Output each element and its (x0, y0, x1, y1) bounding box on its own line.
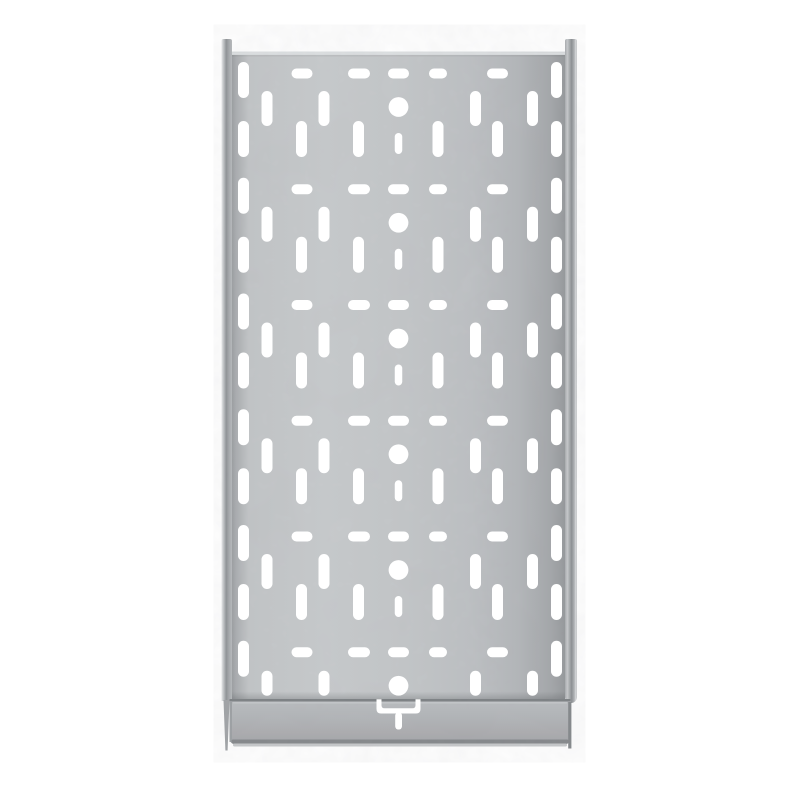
horizontal-slot (292, 184, 313, 194)
horizontal-slot (487, 69, 508, 79)
center-hole (389, 676, 409, 696)
horizontal-slot (487, 416, 508, 426)
horizontal-slot (388, 184, 409, 194)
edge-slot (238, 584, 249, 620)
vertical-slot (262, 671, 273, 696)
edge-slot (551, 468, 562, 504)
vertical-slot (353, 353, 364, 389)
vertical-slot (296, 237, 307, 273)
edge-slot (238, 294, 249, 330)
edge-slot (238, 62, 249, 98)
horizontal-slot (429, 416, 447, 426)
horizontal-slot (388, 532, 409, 542)
horizontal-slot (348, 532, 370, 542)
vertical-slot (319, 671, 330, 696)
vertical-slot (527, 207, 538, 242)
edge-slot (238, 641, 249, 677)
edge-slot (238, 353, 249, 389)
vertical-slot (262, 91, 273, 126)
vertical-slot (353, 121, 364, 157)
vertical-slot (433, 121, 444, 157)
vertical-slot (492, 584, 503, 620)
vertical-slot (296, 468, 307, 504)
vertical-slot (492, 353, 503, 389)
edge-slot (551, 353, 562, 389)
center-small-slot (395, 249, 403, 270)
vertical-slot (470, 91, 481, 126)
vertical-slot (527, 671, 538, 696)
horizontal-slot (388, 69, 409, 79)
horizontal-slot (487, 184, 508, 194)
vertical-slot (527, 91, 538, 126)
vertical-slot (470, 554, 481, 589)
vertical-slot (353, 468, 364, 504)
vertical-slot (492, 121, 503, 157)
edge-slot (238, 409, 249, 445)
vertical-slot (433, 468, 444, 504)
horizontal-slot (348, 416, 370, 426)
edge-slot (551, 237, 562, 273)
center-hole (389, 444, 409, 464)
edge-slot (551, 62, 562, 98)
edge-slot (238, 525, 249, 561)
t-slot-stem (395, 713, 402, 730)
edge-slot (551, 409, 562, 445)
vertical-slot (296, 353, 307, 389)
vertical-slot (319, 554, 330, 589)
vertical-slot (470, 323, 481, 358)
edge-slot (238, 468, 249, 504)
horizontal-slot (429, 184, 447, 194)
edge-slot (551, 641, 562, 677)
center-hole (389, 560, 409, 580)
horizontal-slot (292, 532, 313, 542)
edge-slot (238, 178, 249, 214)
vertical-slot (492, 468, 503, 504)
horizontal-slot (487, 532, 508, 542)
edge-slot (551, 584, 562, 620)
edge-slot (551, 178, 562, 214)
vertical-slot (353, 584, 364, 620)
edge-slot (551, 525, 562, 561)
vertical-slot (262, 207, 273, 242)
horizontal-slot (487, 300, 508, 310)
horizontal-slot (292, 416, 313, 426)
vertical-slot (262, 438, 273, 473)
vertical-slot (527, 438, 538, 473)
vertical-slot (262, 554, 273, 589)
horizontal-slot (429, 647, 447, 657)
vertical-slot (296, 584, 307, 620)
horizontal-slot (429, 532, 447, 542)
horizontal-slot (348, 184, 370, 194)
product-photo (0, 0, 800, 800)
vertical-slot (319, 91, 330, 126)
center-small-slot (395, 133, 403, 154)
vertical-slot (262, 323, 273, 358)
vertical-slot (433, 353, 444, 389)
vertical-slot (353, 237, 364, 273)
center-hole (389, 213, 409, 233)
edge-slot (238, 121, 249, 157)
horizontal-slot (292, 69, 313, 79)
edge-slot (551, 121, 562, 157)
horizontal-slot (348, 300, 370, 310)
vertical-slot (433, 584, 444, 620)
center-hole (389, 97, 409, 117)
vertical-slot (470, 671, 481, 696)
center-small-slot (395, 365, 403, 386)
horizontal-slot (388, 300, 409, 310)
horizontal-slot (388, 647, 409, 657)
vertical-slot (470, 438, 481, 473)
horizontal-slot (388, 416, 409, 426)
vertical-slot (492, 237, 503, 273)
horizontal-slot (429, 300, 447, 310)
horizontal-slot (487, 647, 508, 657)
vertical-slot (319, 438, 330, 473)
cable-tray-image (0, 0, 800, 800)
horizontal-slot (292, 300, 313, 310)
vertical-slot (470, 207, 481, 242)
vertical-slot (433, 237, 444, 273)
horizontal-slot (292, 647, 313, 657)
vertical-slot (319, 207, 330, 242)
center-hole (389, 329, 409, 349)
vertical-slot (319, 323, 330, 358)
horizontal-slot (348, 647, 370, 657)
center-small-slot (395, 596, 403, 617)
vertical-slot (527, 323, 538, 358)
edge-slot (551, 294, 562, 330)
horizontal-slot (348, 69, 370, 79)
center-small-slot (395, 480, 403, 501)
horizontal-slot (429, 69, 447, 79)
vertical-slot (296, 121, 307, 157)
edge-slot (238, 237, 249, 273)
vertical-slot (527, 554, 538, 589)
